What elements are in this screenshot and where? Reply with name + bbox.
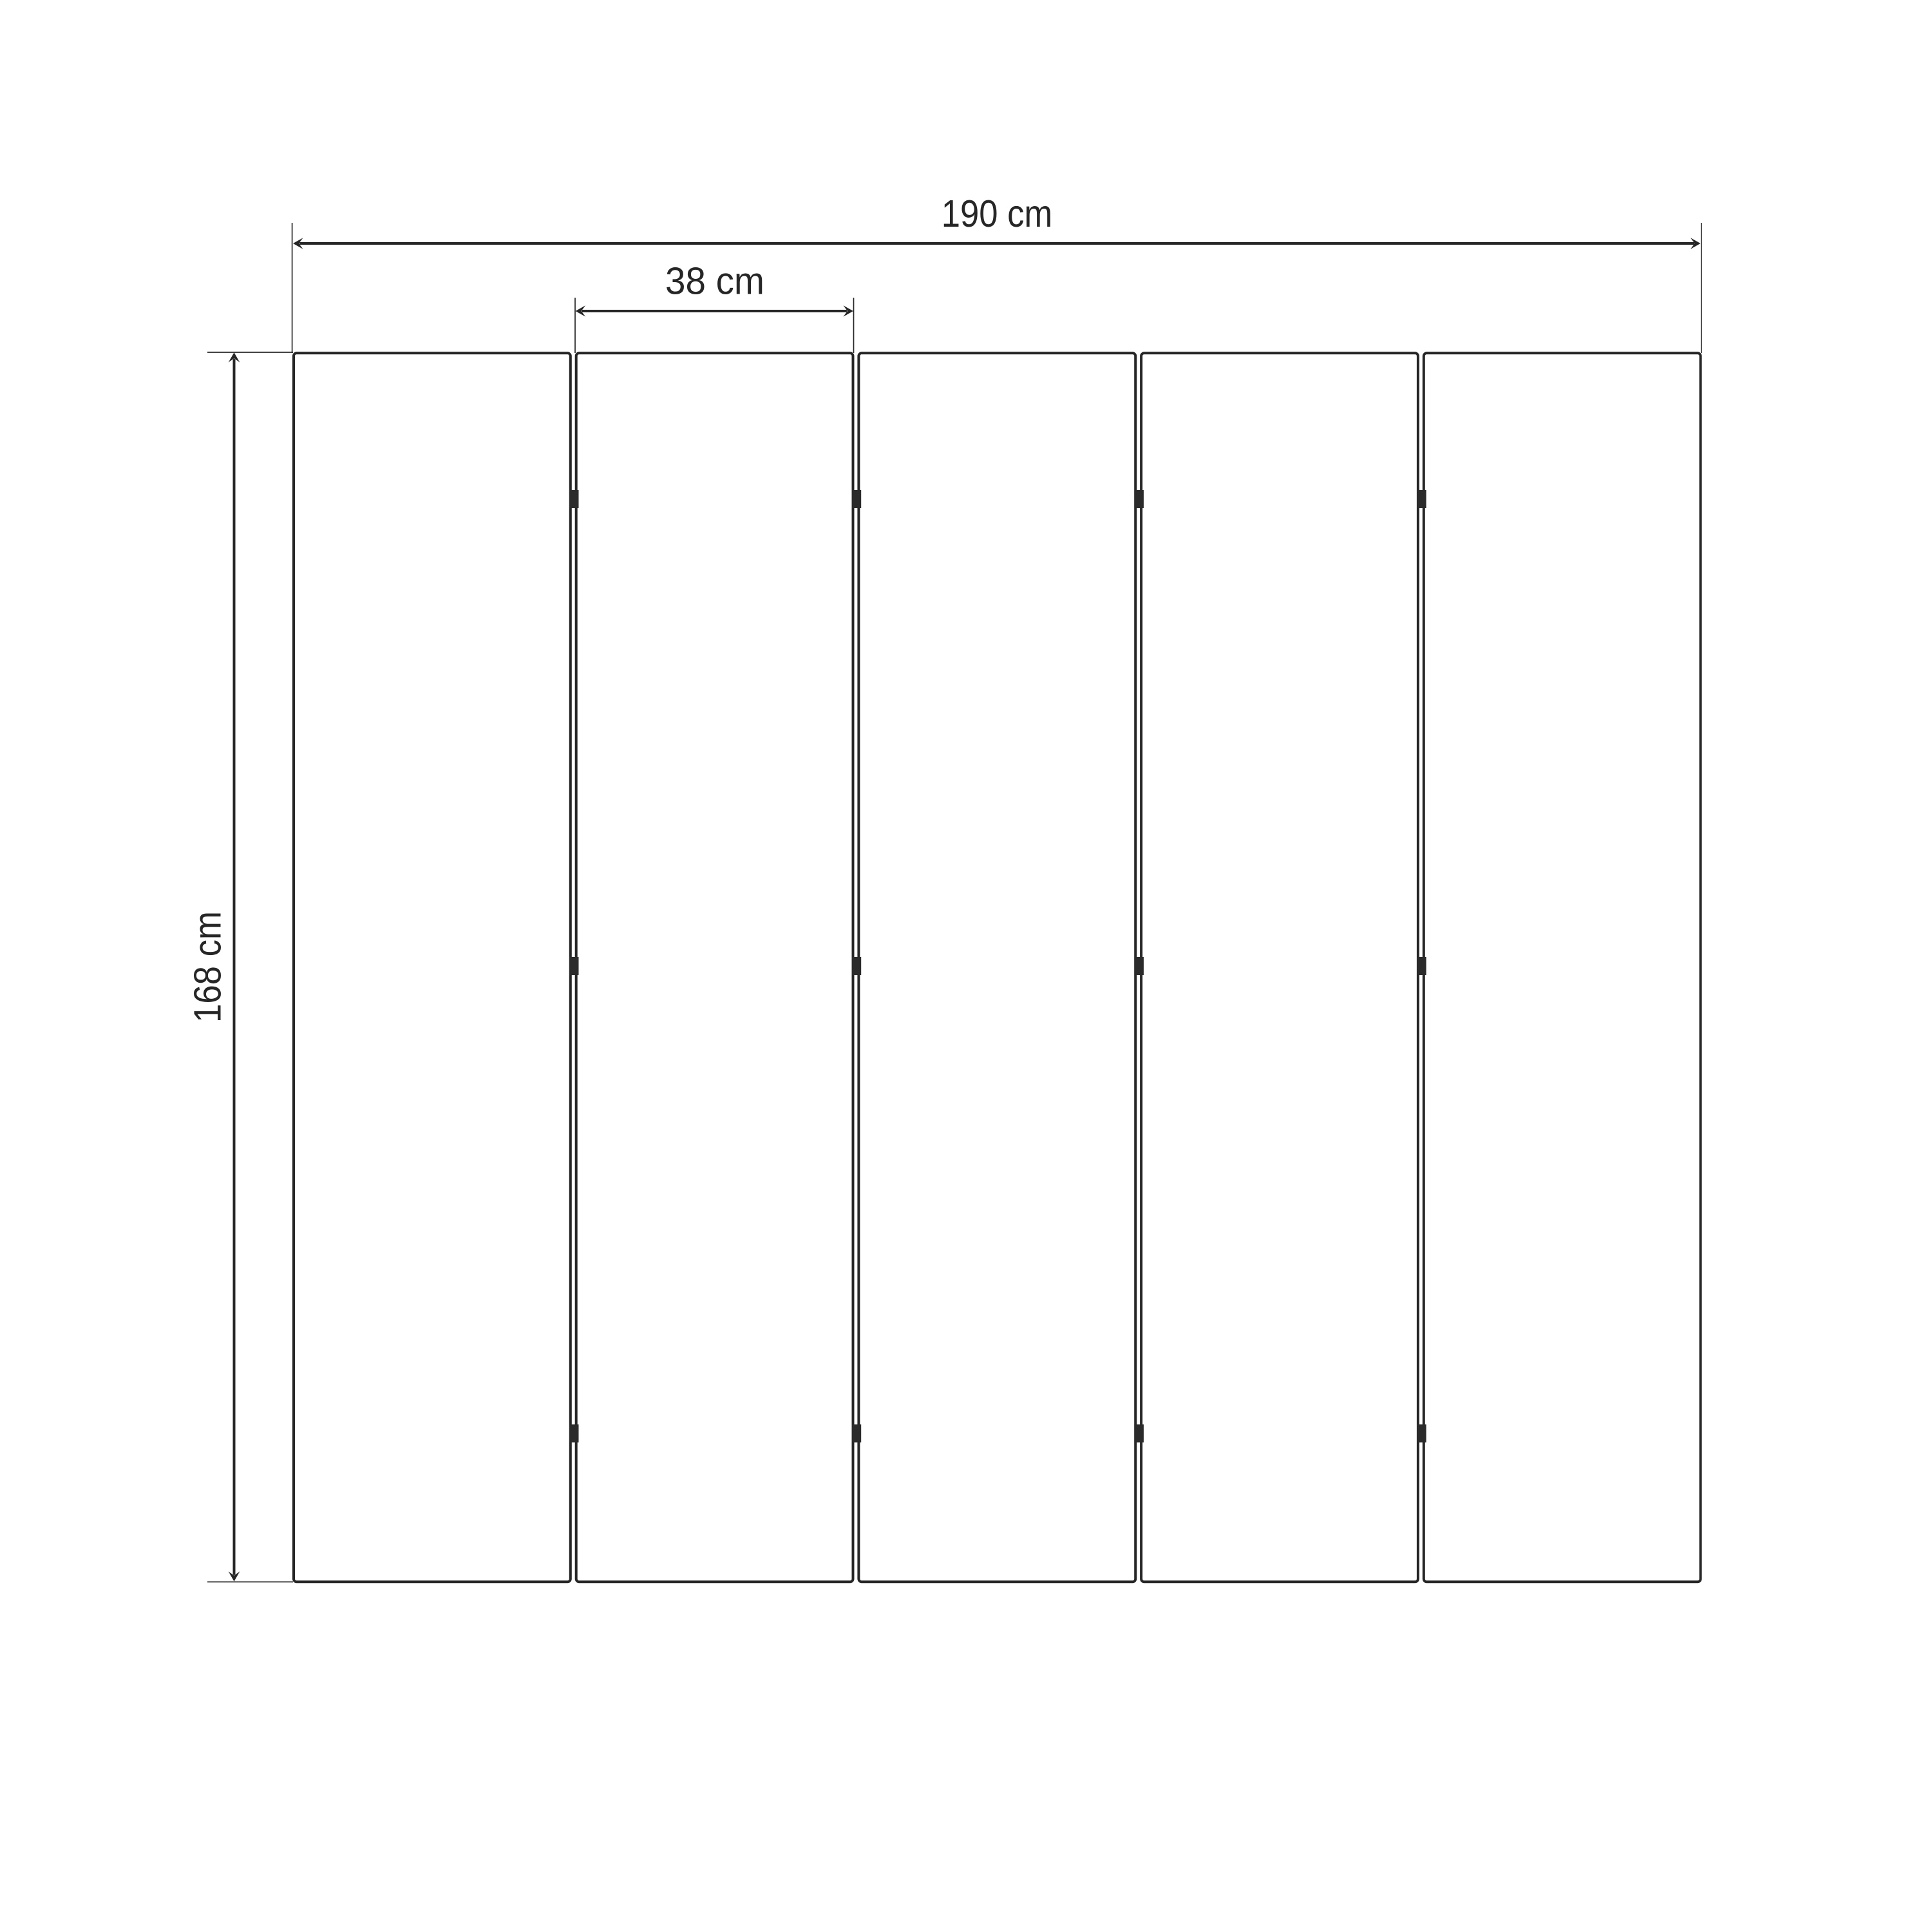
- svg-text:38 cm: 38 cm: [665, 260, 764, 303]
- svg-text:168 cm: 168 cm: [186, 911, 229, 1023]
- svg-text:190 cm: 190 cm: [942, 192, 1053, 235]
